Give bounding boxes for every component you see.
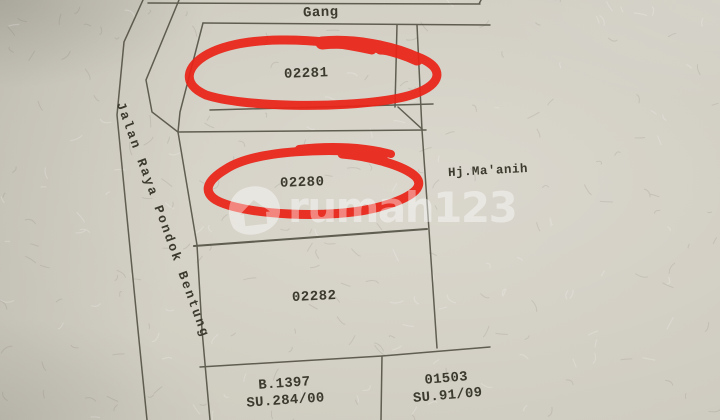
- land-plot-map-photo: Gang Jalan Raya Pondok Bentung 02281 022…: [0, 0, 720, 420]
- parcel-number-02281: 02281: [284, 65, 329, 83]
- strip-east-edge: [417, 25, 422, 130]
- parcel-02282-south-edge: [200, 347, 490, 367]
- road-line-left: [117, 0, 147, 420]
- map-lines: [0, 0, 720, 420]
- gang-label: Gang: [303, 5, 339, 22]
- parcel-02280-north-edge: [178, 130, 426, 132]
- red-circle-overstroke-02281: [322, 42, 417, 59]
- parcel-number-02282: 02282: [292, 288, 337, 306]
- bottom-parcel-divider: [381, 356, 382, 420]
- gang-top-line: [148, 0, 481, 4]
- parcel-ref-b1397: B.1397 SU.284/00: [239, 373, 331, 412]
- gang-bottom-line: [203, 23, 490, 25]
- parcel-number-02280: 02280: [280, 174, 325, 192]
- block-east-edge: [422, 130, 437, 348]
- strip-connector: [398, 107, 422, 129]
